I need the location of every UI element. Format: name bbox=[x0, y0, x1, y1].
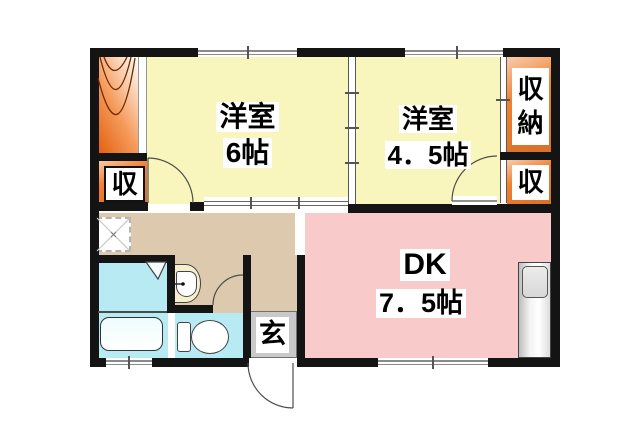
toilet-bowl bbox=[191, 320, 229, 354]
sliding-tick bbox=[298, 197, 300, 209]
floorplan-canvas: 洋室 6帖 洋室 4．5帖 DK 7．5帖 収納 収 収 玄 bbox=[0, 0, 640, 433]
window-line bbox=[405, 50, 503, 52]
window-dk bbox=[378, 358, 488, 367]
wall-main-horizontal-right bbox=[348, 204, 560, 213]
closet-right-mid-label-box: 収 bbox=[512, 165, 549, 200]
washbasin-bowl bbox=[176, 271, 197, 297]
fusuma-partition bbox=[348, 57, 356, 204]
window-line bbox=[405, 54, 503, 56]
closet-left-label: 収 bbox=[111, 170, 137, 198]
room-dk-size-row: 7．5帖 bbox=[305, 289, 537, 318]
closet-right-mid-label: 収 bbox=[517, 168, 543, 196]
window-tick bbox=[247, 46, 249, 59]
room-west45-name: 洋室 bbox=[399, 105, 457, 133]
entrance-label: 玄 bbox=[259, 320, 286, 349]
staircase-area bbox=[98, 57, 138, 153]
toilet-tank bbox=[177, 322, 191, 352]
wall-stairs-closet-divider bbox=[90, 153, 147, 161]
fusuma-tick bbox=[345, 92, 359, 94]
wall-bottom bbox=[90, 358, 560, 367]
room-west6-size-row: 6帖 bbox=[147, 138, 348, 168]
sliding-tick bbox=[250, 197, 252, 209]
entrance-opening bbox=[249, 358, 297, 367]
room-dk-name: DK bbox=[400, 249, 449, 281]
window-tick bbox=[128, 356, 130, 369]
bathroom-tub-divider bbox=[98, 311, 167, 313]
sliding-line bbox=[204, 205, 348, 207]
room-west6-label-row: 洋室 bbox=[147, 102, 348, 132]
wall-main-horizontal-b bbox=[190, 202, 204, 211]
hallway-dk-opening bbox=[295, 213, 305, 255]
closet-left-label-box: 収 bbox=[104, 166, 145, 202]
doorway-west45 bbox=[452, 196, 497, 205]
room-west45-label-row: 洋室 bbox=[356, 105, 500, 133]
room-dk-label-row: DK bbox=[305, 249, 545, 281]
sliding-line bbox=[204, 201, 348, 203]
closet-door-tick bbox=[496, 99, 510, 101]
window-tick bbox=[432, 356, 434, 369]
wall-genkan-left bbox=[243, 255, 251, 358]
window-bathroom bbox=[106, 358, 152, 367]
door-entrance bbox=[248, 363, 293, 408]
wall-bathroom-top bbox=[90, 255, 173, 263]
closet-right-top-label: 収納 bbox=[517, 73, 545, 141]
room-west45-size-row: 4．5帖 bbox=[356, 141, 500, 169]
wall-dk-left bbox=[297, 255, 305, 358]
bathtub bbox=[100, 317, 163, 351]
wall-toilet-top bbox=[167, 305, 213, 313]
room-west6-name: 洋室 bbox=[216, 102, 278, 132]
window-top-west45 bbox=[405, 48, 503, 57]
window-tick bbox=[456, 46, 458, 59]
room-dk-size: 7．5帖 bbox=[376, 289, 466, 318]
entrance-label-box: 玄 bbox=[256, 317, 289, 353]
staircase-room-divider bbox=[138, 57, 147, 153]
room-dk bbox=[305, 213, 551, 358]
room-west6-size: 6帖 bbox=[223, 138, 273, 168]
wall-closet-divider-right bbox=[500, 152, 560, 160]
closet-right-top-label-box: 収納 bbox=[512, 68, 549, 145]
closet-sliding-door bbox=[500, 57, 507, 203]
room-west45-size: 4．5帖 bbox=[385, 141, 472, 169]
window-top-west6 bbox=[198, 48, 297, 57]
wall-main-horizontal-a bbox=[90, 202, 148, 211]
inspection-hatch bbox=[96, 217, 131, 252]
